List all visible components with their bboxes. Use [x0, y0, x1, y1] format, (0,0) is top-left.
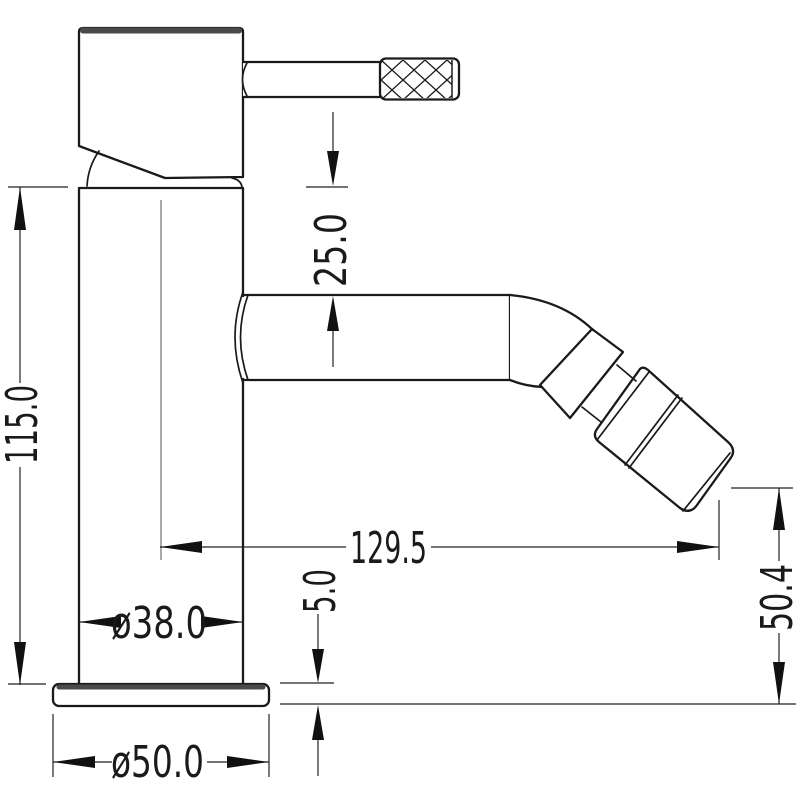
dimension-base-diameter: ø50.0 — [53, 714, 269, 788]
handle-lever — [243, 59, 460, 100]
dimension-label-body-diameter: ø38.0 — [111, 598, 207, 649]
faucet-technical-drawing: 115.0 25.0 129.5 50.4 — [0, 0, 800, 800]
dimension-label-spout-reach: 129.5 — [350, 523, 427, 574]
drawing-canvas: 115.0 25.0 129.5 50.4 — [0, 0, 800, 800]
spout-tube — [229, 292, 510, 383]
dimension-body-diameter: ø38.0 — [79, 598, 243, 649]
dimension-total-height: 115.0 — [0, 187, 68, 685]
dimension-label-total-height: 115.0 — [0, 385, 48, 464]
dimension-base-thickness: 5.0 — [280, 569, 346, 776]
dimension-label-outlet-height: 50.4 — [752, 564, 800, 631]
dimension-label-base-thickness: 5.0 — [295, 569, 346, 613]
base-plate — [53, 684, 269, 706]
dimension-label-head-to-spout: 25.0 — [306, 213, 357, 287]
faucet-head — [79, 28, 243, 187]
dimension-label-base-diameter: ø50.0 — [111, 737, 204, 788]
dimension-outlet-height: 50.4 — [280, 488, 800, 704]
